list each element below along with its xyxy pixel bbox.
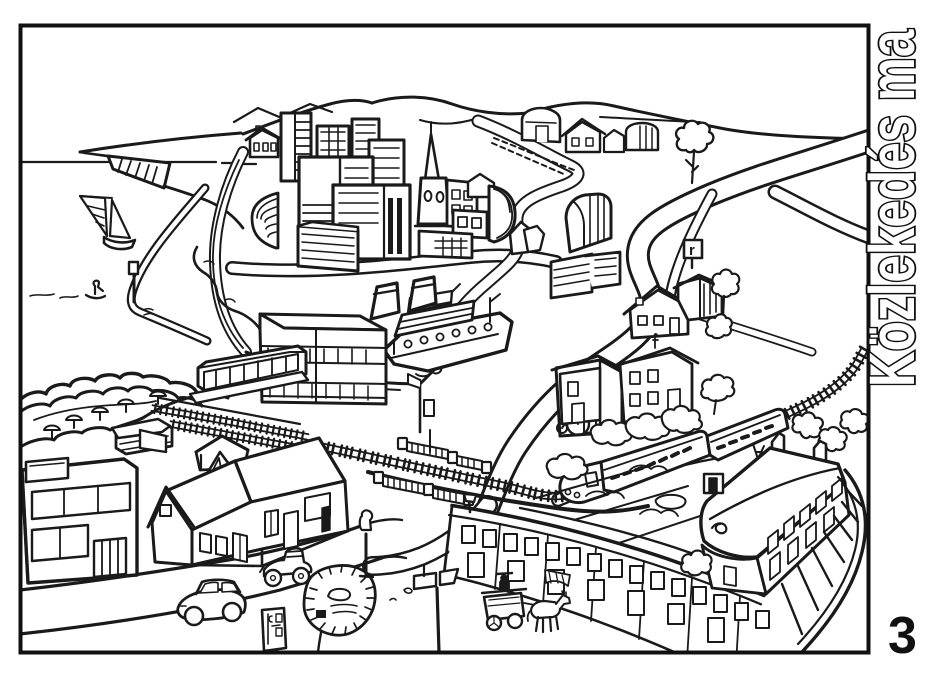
svg-text:Közlekedés ma: Közlekedés ma (857, 29, 929, 387)
svg-text:r: r (689, 242, 695, 259)
svg-text:3: 3 (888, 607, 917, 665)
